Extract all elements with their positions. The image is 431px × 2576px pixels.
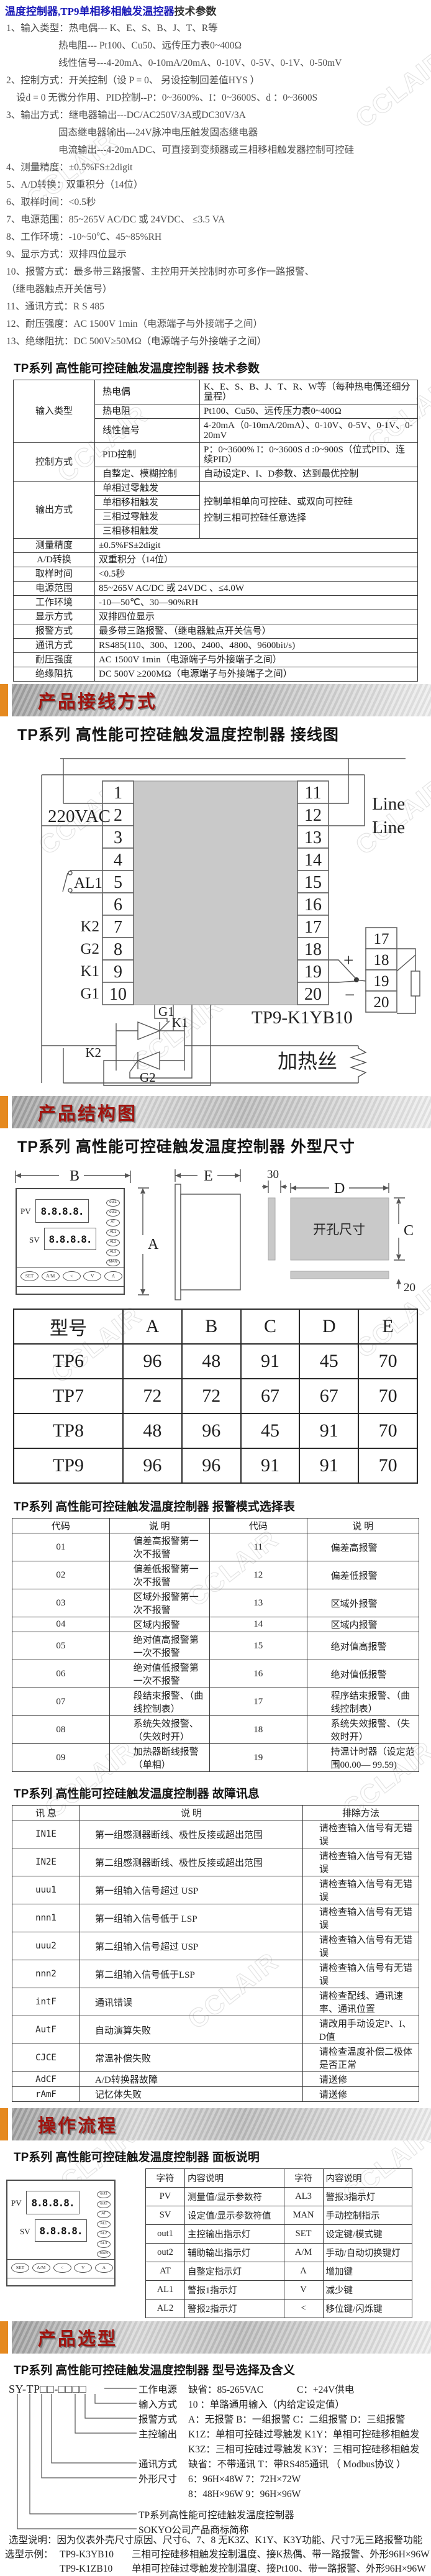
table-cell: 03 <box>12 1589 110 1617</box>
banner-gradient: 操作流程 <box>12 2108 431 2140</box>
pv-display: 8.8.8.8. <box>35 1199 89 1223</box>
table-row: 代码说 明代码说 明 <box>12 1519 419 1533</box>
table-cell: 内容说明 <box>185 2169 284 2188</box>
example-model: TP9-K3YB10 <box>60 2547 114 2562</box>
banner-gradient: 产品结构图 <box>12 1096 431 1128</box>
table-row: AdCFA/D转换器故障请送修 <box>12 2072 419 2087</box>
table-cell: 07 <box>12 1688 110 1716</box>
terminal-number: 14 <box>304 851 322 870</box>
table-cell: 06 <box>12 1660 110 1688</box>
table-cell: 19 <box>209 1744 307 1772</box>
table-row: AL2警报2指示灯<移位键/闪烁键 <box>146 2300 412 2318</box>
banner-gradient: 产品选型 <box>12 2321 431 2354</box>
table-cell: 请检查输入信号有无错误 <box>303 1848 419 1876</box>
selection-row: K3Z：三相可控硅过零触发 K3Y：三相可控硅移相触发 <box>5 2442 431 2457</box>
terminal-number: 15 <box>304 873 322 892</box>
table-cell: 自动设定P、I、D参数、达到最优控制 <box>200 467 418 482</box>
g2-label: G2 <box>80 941 99 957</box>
terminal-number: 19 <box>304 962 322 982</box>
table-cell: 67 <box>299 1379 358 1414</box>
indicator-out2: out2 <box>106 1209 120 1217</box>
table-cell: 请检查温度补偿二极体是否正常 <box>303 2044 419 2072</box>
table-cell: 系统失效报警、（失效时开） <box>109 1716 209 1744</box>
table-cell: ±0.5%FS±2digit <box>95 539 418 553</box>
selection-row: 通讯方式缺省：不带通讯 T：带RS485通讯 （ Modbus协议 ） <box>5 2457 431 2472</box>
table-cell: 请送修 <box>303 2072 419 2087</box>
table-cell: 控制方式 <box>14 443 95 482</box>
table-row: 02偏差低报警第一次不报警12偏差低报警 <box>12 1561 419 1589</box>
table-cell: 91 <box>241 1344 300 1379</box>
terminal-number: 16 <box>304 895 322 915</box>
spec-list-line: 电流输出---4-20mADC、可直接到变频器或三相移相触发器控制可控硅 <box>5 142 427 159</box>
table-row: CJCE常温补偿失败请检查温度补偿二极体是否正常 <box>12 2044 419 2072</box>
table-row: 05绝对值高报警第一次不报警15绝对值高报警 <box>12 1632 419 1660</box>
indicator-at: AT <box>97 2211 111 2218</box>
table-cell: 17 <box>209 1688 307 1716</box>
table-row: 电源范围85~265V AC/DC 或 24VDC 、≤4.0W <box>14 582 418 596</box>
table-cell: 12 <box>209 1561 307 1589</box>
table-cell: V <box>284 2281 323 2300</box>
minus-label: − <box>345 985 355 1005</box>
table-cell: 加热器断线报警（单相） <box>109 1744 209 1772</box>
table-cell: 字符 <box>146 2169 185 2188</box>
dimension-figure: B A E 30 D C 20 开孔尺寸 PV8.8.8.8.SV8.8.8.8… <box>0 1162 431 1304</box>
table-cell: A/D转换器故障 <box>80 2072 303 2087</box>
table-cell: 最多带三路报警、（继电器触点开关信号） <box>95 624 418 639</box>
selection-row-label: 通讯方式 <box>138 2457 177 2472</box>
panel-button: < <box>53 2263 71 2273</box>
table-cell: 请检查输入信号有无错误 <box>303 1932 419 1960</box>
panel-divider <box>17 1267 124 1268</box>
table-cell: 08 <box>12 1716 110 1744</box>
table-cell: 绝对值高报警第一次不报警 <box>109 1632 209 1660</box>
table-cell: 内容说明 <box>323 2169 412 2188</box>
selection-title: TP系列 高性能可控硅触发温度控制器 型号选择及含义 <box>14 2361 431 2378</box>
terminal-number: 1 <box>114 783 122 803</box>
panel-description-figure: PV8.8.8.8.SV8.8.8.8.out1out2ATAL1AL2AL3M… <box>6 2168 427 2315</box>
table-cell: 91 <box>299 1448 358 1483</box>
spec-list-line: 1、输入类型：热电偶--- K、E、S、B、J、T、R等 <box>5 20 427 37</box>
sensor-terminal-number: 19 <box>374 973 389 990</box>
panel-button: A/M <box>32 2263 50 2273</box>
table-cell: 绝对值低报警 <box>307 1660 419 1688</box>
sensor-resistor <box>411 971 420 996</box>
spec-list-line: 4、测量精度：±0.5%FS±2digit <box>5 159 427 176</box>
spec-table: 输入类型热电偶K、E、S、B、J、T、R、W等（每种热电偶还细分量程）热电阻Pt… <box>13 380 418 682</box>
table-cell: 移位键/闪烁键 <box>323 2300 412 2318</box>
indicator-at: AT <box>106 1219 120 1226</box>
table-row: uuu2第二组输入信号超过 USP请检查输入信号有无错误 <box>12 1932 419 1960</box>
table-cell: 04 <box>12 1617 110 1632</box>
table-cell: 警报1指示灯 <box>185 2281 284 2300</box>
table-cell: AL3 <box>284 2188 323 2206</box>
table-cell: 讯 息 <box>12 1806 80 1820</box>
indicator-al2: AL2 <box>97 2231 111 2238</box>
table-cell: SV <box>146 2206 185 2225</box>
table-row: rAmF记忆体失败请送修 <box>12 2087 419 2102</box>
table-cell: E <box>358 1309 417 1344</box>
example-desc: 三相可控硅移相触发控制温度、接K热偶、带一路报警、外形96H×96W <box>132 2547 430 2562</box>
pv-label: PV <box>20 1207 31 1217</box>
terminal-number: 9 <box>114 962 122 982</box>
table-cell: 02 <box>12 1561 110 1589</box>
table-cell: 96 <box>123 1344 182 1379</box>
terminal-number: 6 <box>114 895 122 915</box>
table-cell: 偏差高报警第一次不报警 <box>109 1533 209 1561</box>
table-cell: 自动演算失败 <box>80 2016 303 2044</box>
table-cell: <0.5秒 <box>95 567 418 582</box>
table-cell: 警报2指示灯 <box>185 2300 284 2318</box>
table-cell: 96 <box>182 1448 241 1483</box>
table-row: 01偏差高报警第一次不报警11偏差高报警 <box>12 1533 419 1561</box>
dimension-table: 型号ABCDETP69648914570TP77272676770TP84896… <box>13 1309 418 1484</box>
spec-list-line: 设d = 0 无微分作用、PID控制--P：0~3600%、I：0~3600S、… <box>5 89 427 107</box>
banner-structure-label: 产品结构图 <box>12 1099 137 1125</box>
table-cell: < <box>284 2300 323 2318</box>
indicator-al2: AL2 <box>106 1239 120 1246</box>
banner-selection: 产品选型 <box>0 2321 431 2354</box>
table-cell: 热电阻 <box>95 404 200 419</box>
selection-row-label: 报警方式 <box>138 2413 177 2428</box>
banner-operation-label: 操作流程 <box>12 2111 117 2137</box>
spec-list-line: 3、输出方式：继电器输出---DC/AC250V/3A或DC30V/3A <box>5 107 427 124</box>
table-cell: 控制单相单向可控硅、或双向可控硅 控制三相可控硅任意选择 <box>200 482 418 539</box>
sv-label: SV <box>20 2227 30 2237</box>
table-cell: AL2 <box>146 2300 185 2318</box>
selection-row-text: 缺省：85-265VAC <box>188 2383 263 2398</box>
table-cell: nnn1 <box>12 1904 80 1932</box>
table-row: AL1警报1指示灯V减少键 <box>146 2281 412 2300</box>
selection-row: 主控输出K1Z：单相可控硅过零触发 K1Y：单相可控硅移相触发 <box>5 2428 431 2442</box>
table-cell: 05 <box>12 1632 110 1660</box>
voltage-label: 220VAC <box>48 806 111 826</box>
table-cell: C <box>241 1309 300 1344</box>
panel-button-row: SETA/M<VΛ <box>11 2263 113 2273</box>
plus-label: + <box>343 951 353 971</box>
table-cell: 手动/自动切换键灯 <box>323 2244 412 2262</box>
table-cell: 请检查配线、通讯速率、通讯位置 <box>303 1988 419 2016</box>
table-cell: B <box>182 1309 241 1344</box>
page-title: 温度控制器,TP9单相移相触发温控器技术参数 <box>5 4 427 20</box>
indicator-man: MAN <box>97 2250 111 2258</box>
dim-e-label: E <box>204 1168 213 1184</box>
spec-list-line: 6、取样时间：<0.5秒 <box>5 194 427 211</box>
sv-display: 8.8.8.8. <box>44 1228 96 1250</box>
table-cell: IN2E <box>12 1848 80 1876</box>
panel-button-row: SETA/M<VΛ <box>20 1271 122 1281</box>
table-cell: 辅助输出指示灯 <box>185 2244 284 2262</box>
table-cell: K、E、S、B、J、T、R、W等（每种热电偶还细分量程） <box>200 380 418 404</box>
table-row: SV设定值/显示参数符值MAN手动控制指示 <box>146 2206 412 2225</box>
table-cell: 请改用手动设定P、I、D值 <box>303 2016 419 2044</box>
wiring-diagram: 1 2 3 4 5 6 7 8 9 10 11 12 13 14 15 16 1 <box>2 750 429 1094</box>
table-cell: AT <box>146 2262 185 2281</box>
terminal-number: 18 <box>304 940 322 959</box>
banner-wiring-label: 产品接线方式 <box>12 687 157 713</box>
table-cell: RS485(110、300、1200、2400、4800、9600bit/s) <box>95 639 418 653</box>
terminal-number: 4 <box>114 851 122 870</box>
table-cell: AC 1500V 1min（电源端子与外接端子之间） <box>95 653 418 667</box>
banner-structure: 产品结构图 <box>0 1096 431 1128</box>
table-cell: 67 <box>241 1379 300 1414</box>
g1-label: G1 <box>80 985 99 1002</box>
table-row: 报警方式最多带三路报警、（继电器触点开关信号） <box>14 624 418 639</box>
table-row: 输入类型热电偶K、E、S、B、J、T、R、W等（每种热电偶还细分量程） <box>14 380 418 404</box>
table-cell: 45 <box>299 1344 358 1379</box>
table-cell: 输出方式 <box>14 482 95 539</box>
table-row: 03区域外报警第一次不报警13区域外报警 <box>12 1589 419 1617</box>
example-desc: 单相可控硅过零触发控制温度、接Pt100、带一路报警、外形96H×96W <box>132 2562 426 2576</box>
selection-row-text: A：无报警 B：一组报警 C：二组报警 D：三组报警 <box>188 2413 405 2428</box>
table-cell: 字符 <box>284 2169 323 2188</box>
spec-list-line: 热电阻--- Pt100、Cu50、远传压力表0~400Ω <box>5 37 427 55</box>
selection-row: SOKYO公司产品商标简称 <box>5 2523 431 2538</box>
table-cell: 14 <box>209 1617 307 1632</box>
banner-accent-bar <box>0 1096 8 1128</box>
table-cell: 16 <box>209 1660 307 1688</box>
table-cell: 代码 <box>12 1519 110 1533</box>
selection-row: 工作电源缺省：85-265VACC：+24V供电 <box>5 2383 431 2398</box>
indicator-out1: out1 <box>106 1199 120 1207</box>
scr-k1-label: K1 <box>172 1015 188 1030</box>
table-cell: out1 <box>146 2225 185 2244</box>
selection-row-text: 缺省：不带通讯 T：带RS485通讯 （ Modbus协议 ） <box>188 2457 406 2472</box>
terminal-number: 17 <box>304 918 322 937</box>
table-cell: 记忆体失败 <box>80 2087 303 2102</box>
table-cell: 手动控制指示 <box>323 2206 412 2225</box>
table-row: 07段结束报警、（曲线控制表）17程序结束报警、（曲线控制表） <box>12 1688 419 1716</box>
table-cell: 自整定、模糊控制 <box>95 467 200 482</box>
table-row: out1主控输出指示灯SET设定键/模式键 <box>146 2225 412 2244</box>
controller-front-panel: PV8.8.8.8.SV8.8.8.8.out1out2ATAL1AL2AL3M… <box>6 2180 116 2286</box>
table-cell: IN1E <box>12 1820 80 1848</box>
spec-list-line: 12、耐压强度：AC 1500V 1min（电源端子与外接端子之间） <box>5 316 427 333</box>
table-cell: 18 <box>209 1716 307 1744</box>
table-cell: 说 明 <box>307 1519 419 1533</box>
table-row: 09加热器断线报警（单相）19持温计时器（设定范围00.00— 99.59) <box>12 1744 419 1772</box>
table-cell: 绝缘阻抗 <box>14 667 95 682</box>
table-cell: 说 明 <box>80 1806 303 1820</box>
heater-label: 加热丝 <box>278 1050 337 1072</box>
table-cell: 4-20mA（0-10mA/20mA）、0-10V、0-5V、0-1V、0-20… <box>200 419 418 443</box>
banner-operation: 操作流程 <box>0 2108 431 2140</box>
table-cell: 设定值/显示参数符值 <box>185 2206 284 2225</box>
indicator-al3: AL3 <box>106 1249 120 1256</box>
table-cell: 单相移相触发 <box>95 496 200 510</box>
spec-list-line: （继电器触点开关信号） <box>5 281 427 298</box>
example-model: TP9-K1ZB10 <box>60 2562 112 2576</box>
table-cell: AutF <box>12 2016 80 2044</box>
selection-row-text2: C：+24V供电 <box>297 2383 354 2398</box>
table-cell: 持温计时器（设定范围00.00— 99.59) <box>307 1744 419 1772</box>
selection-row-label: 输入方式 <box>138 2398 177 2413</box>
selection-row: 外形尺寸6：96H×48W 7：72H×72W <box>5 2472 431 2487</box>
table-cell: 91 <box>241 1448 300 1483</box>
selection-row-label: 外形尺寸 <box>138 2472 177 2487</box>
table-cell: MAN <box>284 2206 323 2225</box>
table-cell: 代码 <box>209 1519 307 1533</box>
terminal-number: 11 <box>305 783 322 803</box>
selection-row-text: SOKYO公司产品商标简称 <box>138 2523 248 2538</box>
table-cell: 系统失效报警、（失效时开） <box>307 1716 419 1744</box>
table-cell: 通讯错误 <box>80 1988 303 2016</box>
terminal-number: 10 <box>109 985 127 1004</box>
panel-divider <box>7 2278 114 2278</box>
banner-selection-label: 产品选型 <box>12 2324 117 2350</box>
example-label: 选型示例： <box>5 2547 53 2562</box>
product-datasheet-page: CCLAIR CCLAIR CCLAIR CCLAIR CCLAIR CCLAI… <box>0 0 431 2576</box>
terminal-block: 1 2 3 4 5 6 7 8 9 10 11 12 13 14 15 16 1 <box>102 781 329 1005</box>
panel-divider <box>17 1286 124 1287</box>
controller-front-panel: PV8.8.8.8.SV8.8.8.8.out1out2ATAL1AL2AL3M… <box>16 1188 125 1295</box>
table-cell: 区域外报警 <box>307 1589 419 1617</box>
table-cell: -10—50℃、30—90%RH <box>95 596 418 610</box>
indicator-al1: AL1 <box>106 1229 120 1236</box>
table-cell: 三相移相触发 <box>95 524 200 539</box>
table-cell: A <box>123 1309 182 1344</box>
table-cell: TP9 <box>14 1448 123 1483</box>
table-cell: 第一组输入信号超过 USP <box>80 1876 303 1904</box>
table-cell: 区域内报警 <box>109 1617 209 1632</box>
selection-example: TP9-K1ZB10 单相可控硅过零触发控制温度、接Pt100、带一路报警、外形… <box>0 2562 431 2576</box>
selection-row-text: K1Z：单相可控硅过零触发 K1Y：单相可控硅移相触发 <box>188 2428 419 2442</box>
table-cell: DC 500V ≥200MΩ（电源端子与外接端子之间） <box>95 667 418 682</box>
selection-row-text: 8：48H×96W 9：96H×96W <box>188 2487 301 2502</box>
table-cell: 请送修 <box>303 2087 419 2102</box>
selection-row-label: 工作电源 <box>138 2383 177 2398</box>
table-cell: 工作环境 <box>14 596 95 610</box>
operation-title: TP系列 高性能可控硅触发温度控制器 面板说明 <box>14 2148 431 2165</box>
panel-button: A/M <box>42 1271 60 1281</box>
table-cell: 96 <box>123 1448 182 1483</box>
table-row: TP99696919170 <box>14 1448 417 1483</box>
table-cell: 第二组输入信号超过 USP <box>80 1932 303 1960</box>
table-row: IN1E第一组感测器断线、极性反接或超出范围请检查输入信号有无错误 <box>12 1820 419 1848</box>
table-cell: uuu2 <box>12 1932 80 1960</box>
dim-30-label: 30 <box>267 1168 279 1181</box>
dim-a-label: A <box>148 1236 159 1253</box>
table-cell: 输入类型 <box>14 380 95 443</box>
table-row: IN2E第二组感测器断线、极性反接或超出范围请检查输入信号有无错误 <box>12 1848 419 1876</box>
terminal-number: 12 <box>304 806 322 825</box>
table-cell: 增加键 <box>323 2262 412 2281</box>
spec-list-line: 9、显示方式：双排四位显示 <box>5 246 427 263</box>
scr-k2-label: K2 <box>85 1045 101 1060</box>
table-cell: 双排四位显示 <box>95 610 418 624</box>
table-row: out2辅助输出指示灯A/M手动/自动切换键灯 <box>146 2244 412 2262</box>
table-cell: 请检查输入信号有无错误 <box>303 1876 419 1904</box>
selection-row: 8：48H×96W 9：96H×96W <box>5 2487 431 2502</box>
table-row: TP77272676770 <box>14 1379 417 1414</box>
table-cell: 程序结束报警、（曲线控制表） <box>307 1688 419 1716</box>
table-cell: 第二组输入信号低于LSP <box>80 1960 303 1988</box>
sensor-terminal-number: 20 <box>374 994 389 1011</box>
panel-button: Λ <box>95 2263 113 2273</box>
indicator-al1: AL1 <box>97 2221 111 2228</box>
sensor-terminal-number: 18 <box>374 952 389 969</box>
table-cell: 单相过零触发 <box>95 482 200 496</box>
spec-list-line: 10、报警方式：最多带三路报警、主控用开关控制时亦可多作一路报警、 <box>5 263 427 281</box>
banner-accent-bar <box>0 2108 8 2140</box>
table-row: uuu1第一组输入信号超过 USP请检查输入信号有无错误 <box>12 1876 419 1904</box>
table-row: 绝缘阻抗DC 500V ≥200MΩ（电源端子与外接端子之间） <box>14 667 418 682</box>
model-selection-tree: SY-TP□□-□□□□ 工作电源缺省：85-265VACC：+24V供电输入方… <box>5 2383 431 2531</box>
table-cell: P：0~3600% I：0~3600S d :0~900S（位式PID、连续PI… <box>200 443 418 467</box>
table-row: TP69648914570 <box>14 1344 417 1379</box>
dim-b-label: B <box>70 1168 79 1184</box>
dim-c-label: C <box>404 1223 414 1239</box>
selection-row: TP系列高性能可控硅触发温度控制器 <box>5 2508 431 2523</box>
indicator-column: out1out2ATAL1AL2AL3MAN <box>97 2191 111 2258</box>
pv-display: 8.8.8.8. <box>26 2191 79 2214</box>
alarm-table-title: TP系列 高性能可控硅触发温度控制器 报警模式选择表 <box>14 1497 431 1514</box>
selection-row-text: TP系列高性能可控硅触发温度控制器 <box>138 2508 294 2523</box>
table-cell: 报警方式 <box>14 624 95 639</box>
panel-button: Λ <box>104 1271 122 1281</box>
selection-row-text: K3Z：三相可控硅过零触发 K3Y：三相可控硅移相触发 <box>188 2442 419 2457</box>
spec-list-line: 2、控制方式：开关控制（设 P = 0、 另设控制回差值HYS ） <box>5 72 427 89</box>
selection-row-text: 10 ：单路通用输入（内给定设定值） <box>188 2398 345 2413</box>
selection-row-label: 主控输出 <box>138 2428 177 2442</box>
table-cell: TP8 <box>14 1414 123 1448</box>
selection-row: 报警方式A：无报警 B：一组报警 C：二组报警 D：三组报警 <box>5 2413 431 2428</box>
banner-accent-bar <box>0 2321 8 2354</box>
table-row: AutF自动演算失败请改用手动设定P、I、D值 <box>12 2016 419 2044</box>
indicator-man: MAN <box>106 1259 120 1266</box>
panel-button: SET <box>20 1271 39 1281</box>
table-cell: 三相过零触发 <box>95 510 200 524</box>
terminal-number: 2 <box>114 806 122 825</box>
table-cell: 70 <box>358 1448 417 1483</box>
terminal-number: 5 <box>114 873 122 892</box>
table-cell: 双重积分（14位） <box>95 553 418 567</box>
spec-list: 1、输入类型：热电偶--- K、E、S、B、J、T、R等热电阻--- Pt100… <box>5 20 427 350</box>
table-cell: 设定键/模式键 <box>323 2225 412 2244</box>
panel-divider <box>7 2259 114 2260</box>
spec-list-line: 8、工作环境：-10~50℃、45~85%RH <box>5 229 427 246</box>
spec-list-line: 13、绝缘阻抗：DC 500V≥50MΩ（电源端子与外接端子之间） <box>5 333 427 350</box>
table-cell: uuu1 <box>12 1876 80 1904</box>
terminal-number: 3 <box>114 828 122 847</box>
table-row: TP84896459170 <box>14 1414 417 1448</box>
table-cell: 测量精度 <box>14 539 95 553</box>
cutout-label: 开孔尺寸 <box>313 1222 365 1237</box>
table-cell: A/D转换 <box>14 553 95 567</box>
spec-list-line: 7、电源范围：85~265V AC/DC 或 24VDC、 ≤3.5 VA <box>5 211 427 229</box>
panel-button: V <box>74 2263 92 2273</box>
table-cell: 偏差高报警 <box>307 1533 419 1561</box>
table-row: 04区域内报警14区域内报警 <box>12 1617 419 1632</box>
table-row: 显示方式双排四位显示 <box>14 610 418 624</box>
table-cell: 热电偶 <box>95 380 200 404</box>
scr-g2-label: G2 <box>140 1070 156 1085</box>
table-cell: 09 <box>12 1744 110 1772</box>
page-title-suffix: 技术参数 <box>174 6 216 17</box>
table-row: 型号ABCDE <box>14 1309 417 1344</box>
fault-table-title: TP系列 高性能可控硅触发温度控制器 故障讯息 <box>14 1784 431 1801</box>
table-cell: 说 明 <box>109 1519 209 1533</box>
line1-label: Line <box>372 794 405 814</box>
table-cell: 第一组感测器断线、极性反接或超出范围 <box>80 1820 303 1848</box>
table-cell: PID控制 <box>95 443 200 467</box>
wiring-model-label: TP9-K1YB10 <box>252 1008 353 1028</box>
table-cell: 70 <box>358 1344 417 1379</box>
table-row: 08系统失效报警、（失效时开）18系统失效报警、（失效时开） <box>12 1716 419 1744</box>
table-cell: 显示方式 <box>14 610 95 624</box>
table-cell: 85~265V AC/DC 或 24VDC 、≤4.0W <box>95 582 418 596</box>
table-cell: 自整定指示灯 <box>185 2262 284 2281</box>
table-cell: 排除方法 <box>303 1806 419 1820</box>
